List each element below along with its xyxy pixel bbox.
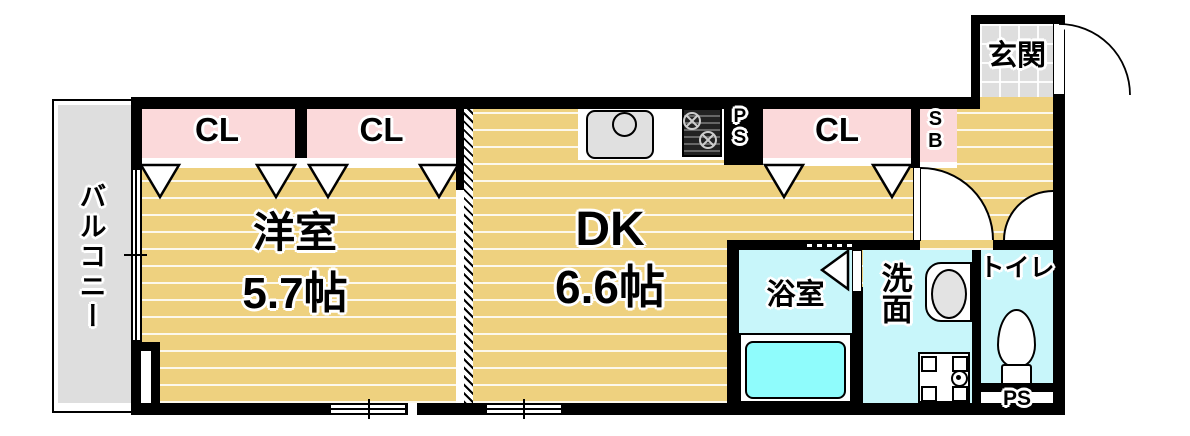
entrance-label: 玄関	[978, 42, 1056, 72]
bathroom-label: 浴室	[739, 281, 852, 311]
floorplan: バルコニー CL CL CL SB PS 玄関 洋室 5.7帖 DK 6.6帖 …	[0, 0, 1190, 436]
closet-west-1-label: CL	[139, 113, 295, 147]
toilet-label: トイレ	[977, 256, 1057, 282]
toilet-ps-label: PS	[981, 388, 1053, 409]
balcony-label: バルコニー	[76, 182, 104, 332]
closet-fold-door-icon	[420, 165, 458, 197]
closet-west-2-label: CL	[307, 113, 456, 147]
western-room-size: 5.7帖	[150, 272, 440, 317]
kitchen-ps-label: PS	[730, 106, 749, 148]
stove-burner-icon	[684, 113, 716, 148]
dk-room-size: 6.6帖	[490, 264, 730, 311]
entrance-door-arc	[1059, 24, 1130, 95]
dk-hall-door-swing	[921, 168, 993, 240]
closet-fold-door-icon	[765, 165, 803, 197]
closet-fold-door-icon	[873, 165, 911, 197]
dk-room-name: DK	[490, 206, 730, 255]
closet-fold-door-icon	[257, 165, 295, 197]
washroom-label: 洗面	[878, 262, 910, 324]
western-room-name: 洋室	[150, 212, 440, 255]
closet-fold-door-icon	[309, 165, 347, 197]
shoe-box-label: SB	[925, 108, 945, 152]
closet-dk-label: CL	[763, 113, 911, 147]
closet-fold-door-icon	[141, 165, 179, 197]
